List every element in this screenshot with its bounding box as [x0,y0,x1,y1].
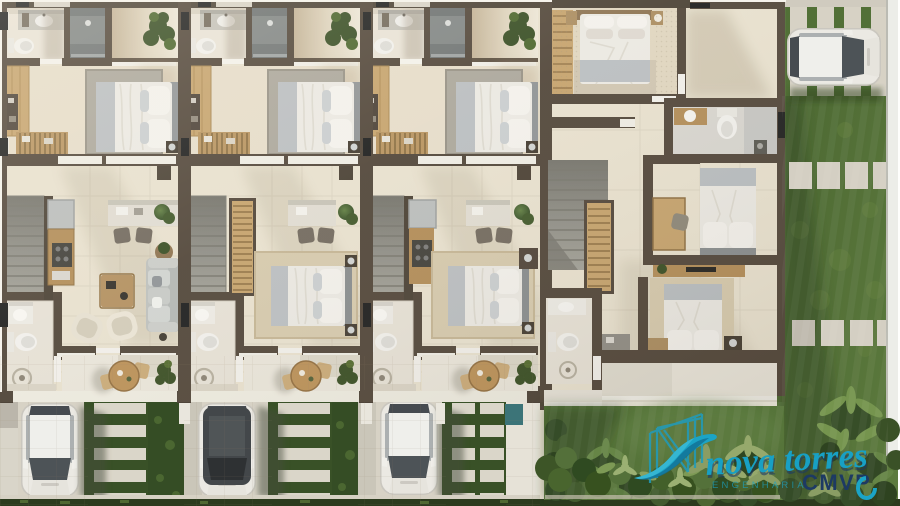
svg-text:ENGENHARIA: ENGENHARIA [712,480,807,491]
